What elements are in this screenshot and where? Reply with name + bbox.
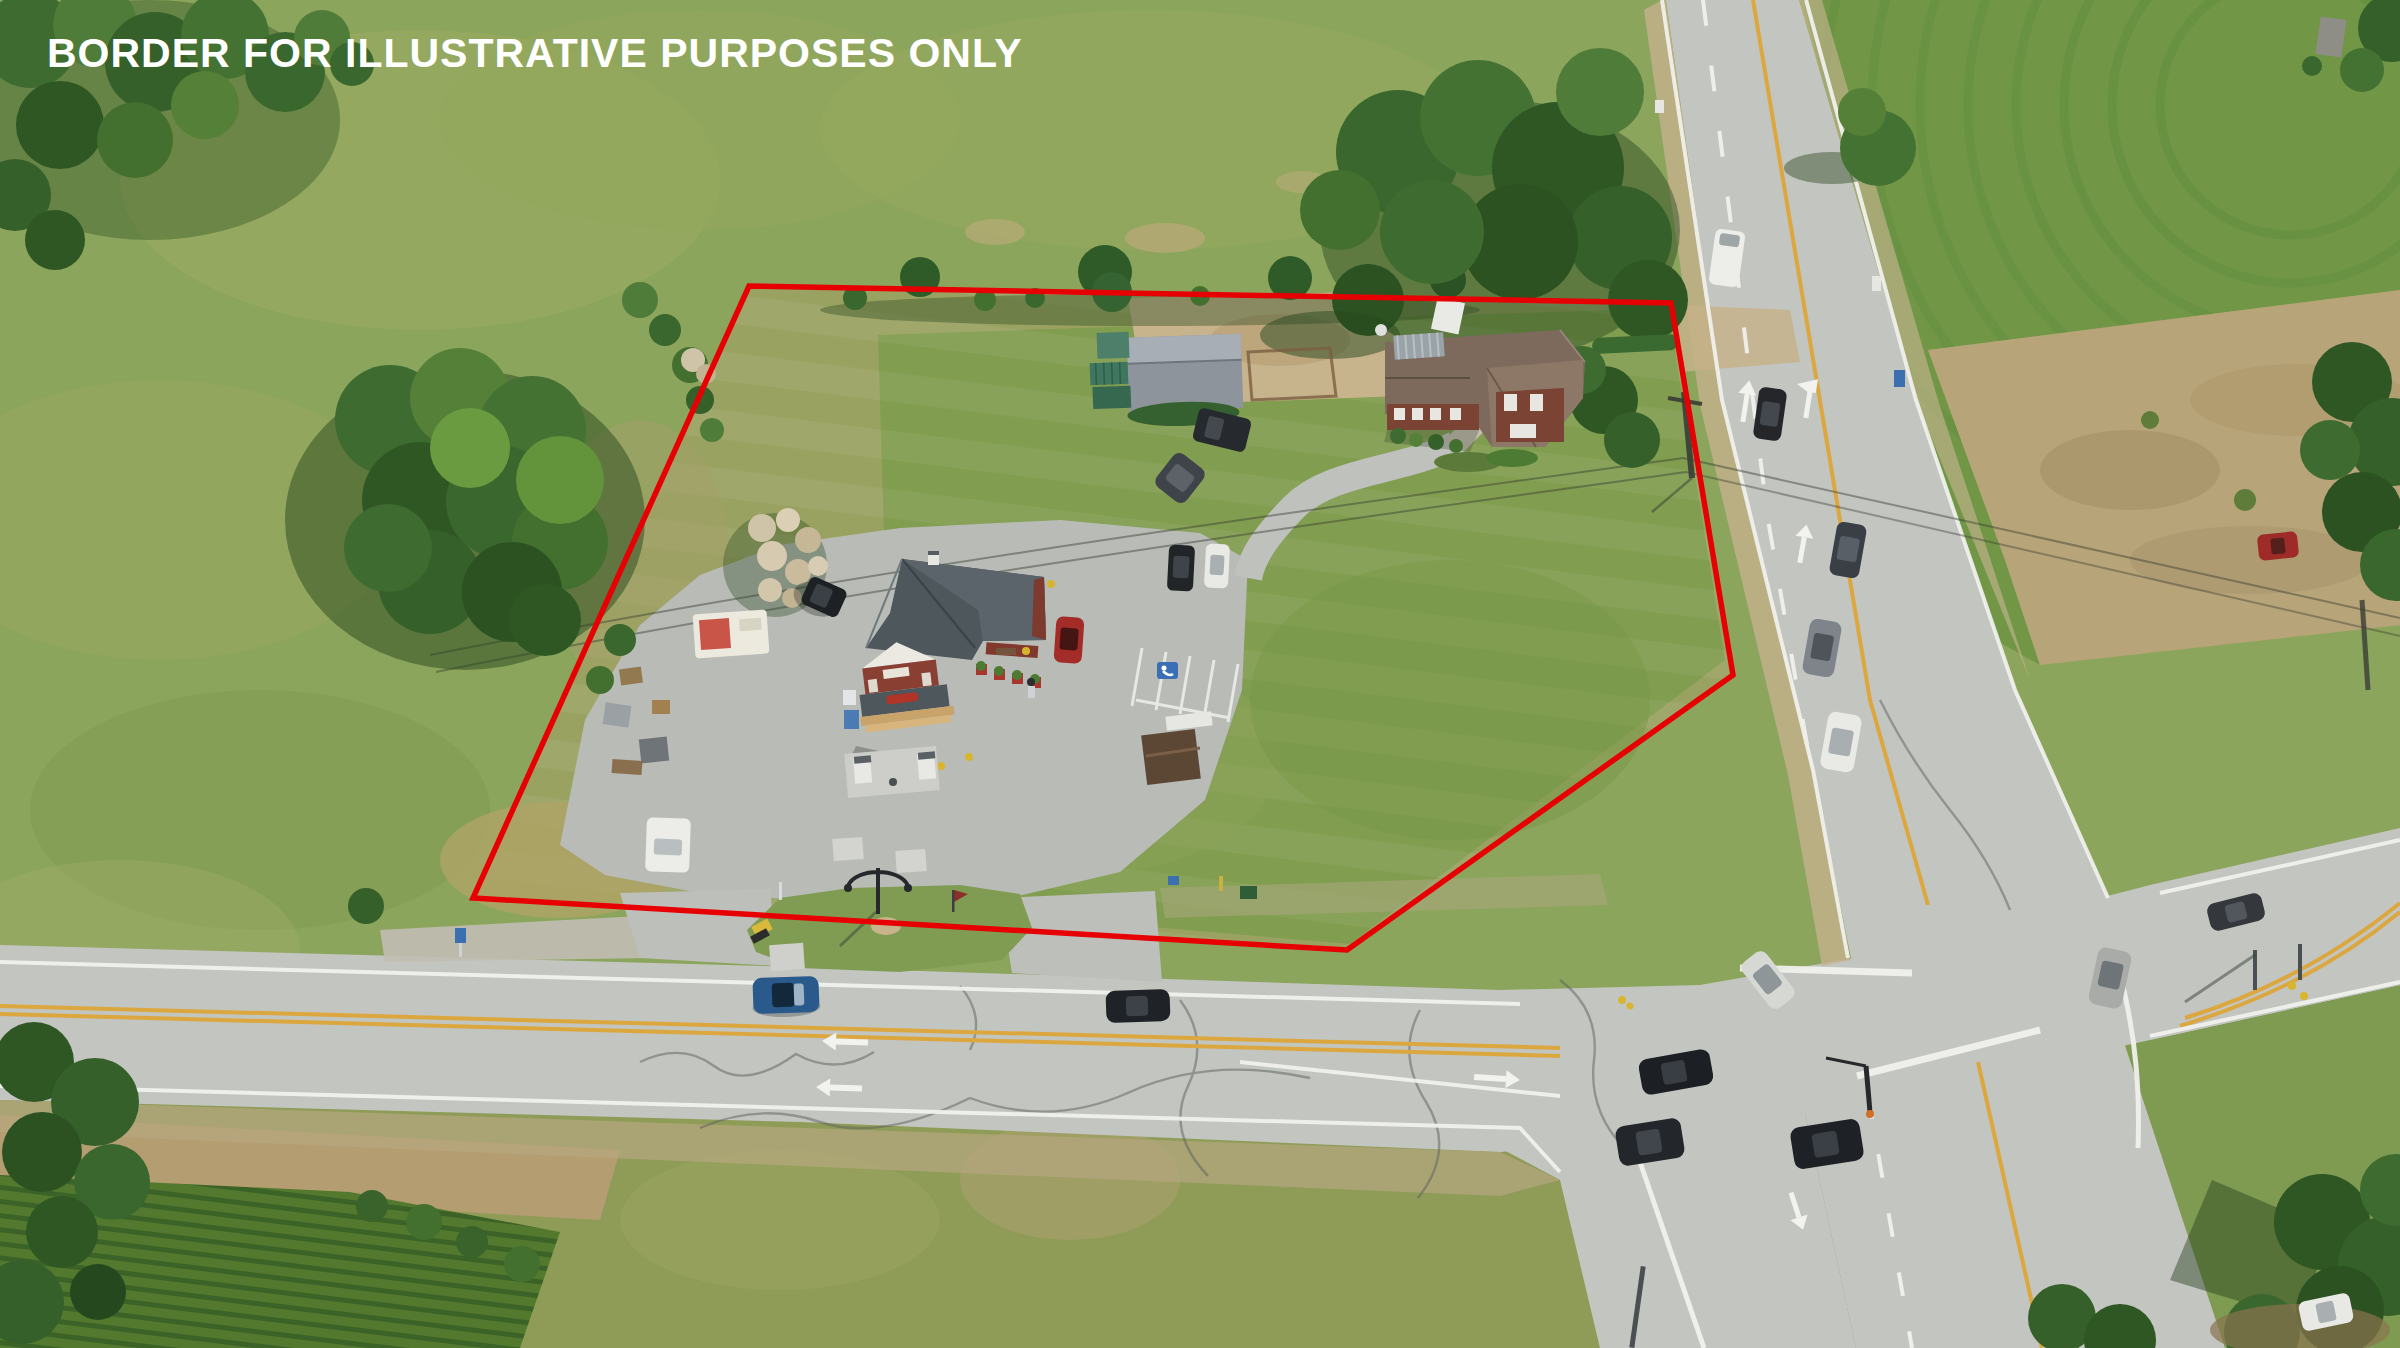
barn-leanto bbox=[1097, 332, 1130, 359]
aerial-scene bbox=[0, 0, 2400, 1348]
vehicle-white-van-west bbox=[645, 817, 691, 873]
pedestrian bbox=[1027, 678, 1035, 698]
cupola bbox=[928, 554, 939, 565]
satellite-dish bbox=[1375, 324, 1387, 336]
vehicle-red-car-store bbox=[1053, 616, 1084, 664]
aerial-photo: BORDER FOR ILLUSTRATIVE PURPOSES ONLY bbox=[0, 0, 2400, 1348]
blue-sign-east bbox=[1168, 876, 1179, 885]
shipping-container-2 bbox=[1092, 386, 1131, 409]
vehicle-red-car-parked bbox=[2257, 531, 2299, 561]
marker-post bbox=[1219, 876, 1223, 891]
white-sign-highway bbox=[1872, 276, 1881, 291]
blue-sign-west bbox=[455, 928, 466, 943]
white-sign-nw bbox=[1655, 100, 1664, 113]
gas-pumps bbox=[844, 746, 939, 798]
handicap-symbol bbox=[1157, 662, 1178, 679]
blue-sign-highway bbox=[1894, 370, 1905, 387]
bench bbox=[996, 648, 1016, 655]
watermark-text: BORDER FOR ILLUSTRATIVE PURPOSES ONLY bbox=[47, 30, 1023, 77]
utility-box bbox=[1240, 886, 1257, 899]
vehicle-blue-sedan bbox=[751, 976, 820, 1018]
vehicle-black-sedan-road bbox=[1105, 989, 1170, 1023]
vehicle-white-car-lot-ne bbox=[1204, 543, 1230, 588]
food-trailer bbox=[693, 609, 770, 658]
vehicle-black-car-lot-ne bbox=[1167, 544, 1195, 591]
ice-box bbox=[844, 710, 859, 729]
screened-porch bbox=[1393, 332, 1445, 359]
